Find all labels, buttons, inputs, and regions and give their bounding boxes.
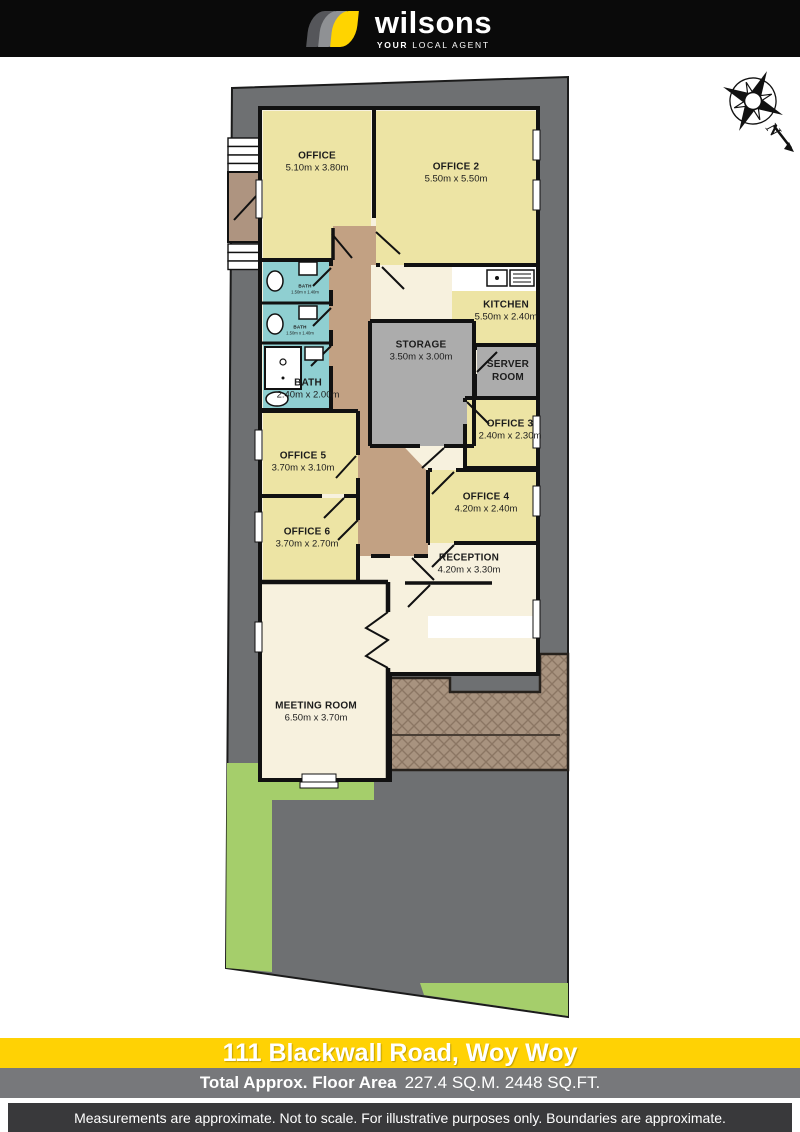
room-label-reception: RECEPTION4.20m x 3.30m (438, 551, 501, 576)
meeting-floor (263, 584, 387, 778)
room-label-kitchen: KITCHEN5.50m x 2.40m (475, 298, 538, 323)
floorplan-page: wilsons YOUR LOCAL AGENT (0, 0, 800, 1132)
room-label-server-room: SERVER ROOM (479, 358, 537, 384)
toilet-icon (267, 314, 283, 334)
room-label-office4: OFFICE 44.20m x 2.40m (455, 490, 518, 515)
room-label-meeting-room: MEETING ROOM6.50m x 3.70m (275, 699, 357, 724)
disclaimer-bar: Measurements are approximate. Not to sca… (8, 1103, 792, 1132)
room-label-storage: STORAGE3.50m x 3.00m (390, 338, 453, 363)
entry-porch (428, 616, 536, 638)
toilet-icon (267, 271, 283, 291)
corridor-top (333, 226, 376, 265)
room-label-bath2: BATH1.50m x 1.40m (286, 324, 314, 335)
room-label-office5: OFFICE 53.70m x 3.10m (272, 449, 335, 474)
address-bar: 111 Blackwall Road, Woy Woy (0, 1038, 800, 1068)
room-label-office2: OFFICE 25.50m x 5.50m (425, 160, 488, 185)
corridor-low (371, 472, 428, 556)
floor-plan-drawing: N (0, 0, 800, 1132)
room-label-office3: OFFICE 32.40m x 2.30m (479, 417, 542, 442)
property-address: 111 Blackwall Road, Woy Woy (223, 1039, 578, 1068)
room-label-bath3: BATH2.40m x 2.00m (277, 376, 340, 401)
compass-icon: N (709, 57, 797, 152)
floor-area-label: Total Approx. Floor Area (200, 1073, 397, 1093)
floor-area-bar: Total Approx. Floor Area 227.4 SQ.M. 244… (0, 1068, 800, 1098)
sink-icon (299, 306, 317, 319)
room-label-office: OFFICE5.10m x 3.80m (286, 149, 349, 174)
room-label-office6: OFFICE 63.70m x 2.70m (276, 525, 339, 550)
floor-plan: N OFFICE5.10m x 3.80m OFFICE 25.50m x 5.… (0, 0, 800, 1132)
disclaimer-text: Measurements are approximate. Not to sca… (74, 1110, 726, 1126)
sink-icon (305, 347, 323, 360)
room-label-bath1: BATH1.50m x 1.40m (291, 283, 319, 294)
sink-icon (299, 262, 317, 275)
floor-area-value: 227.4 SQ.M. 2448 SQ.FT. (405, 1073, 601, 1093)
office2-floor (376, 111, 536, 265)
